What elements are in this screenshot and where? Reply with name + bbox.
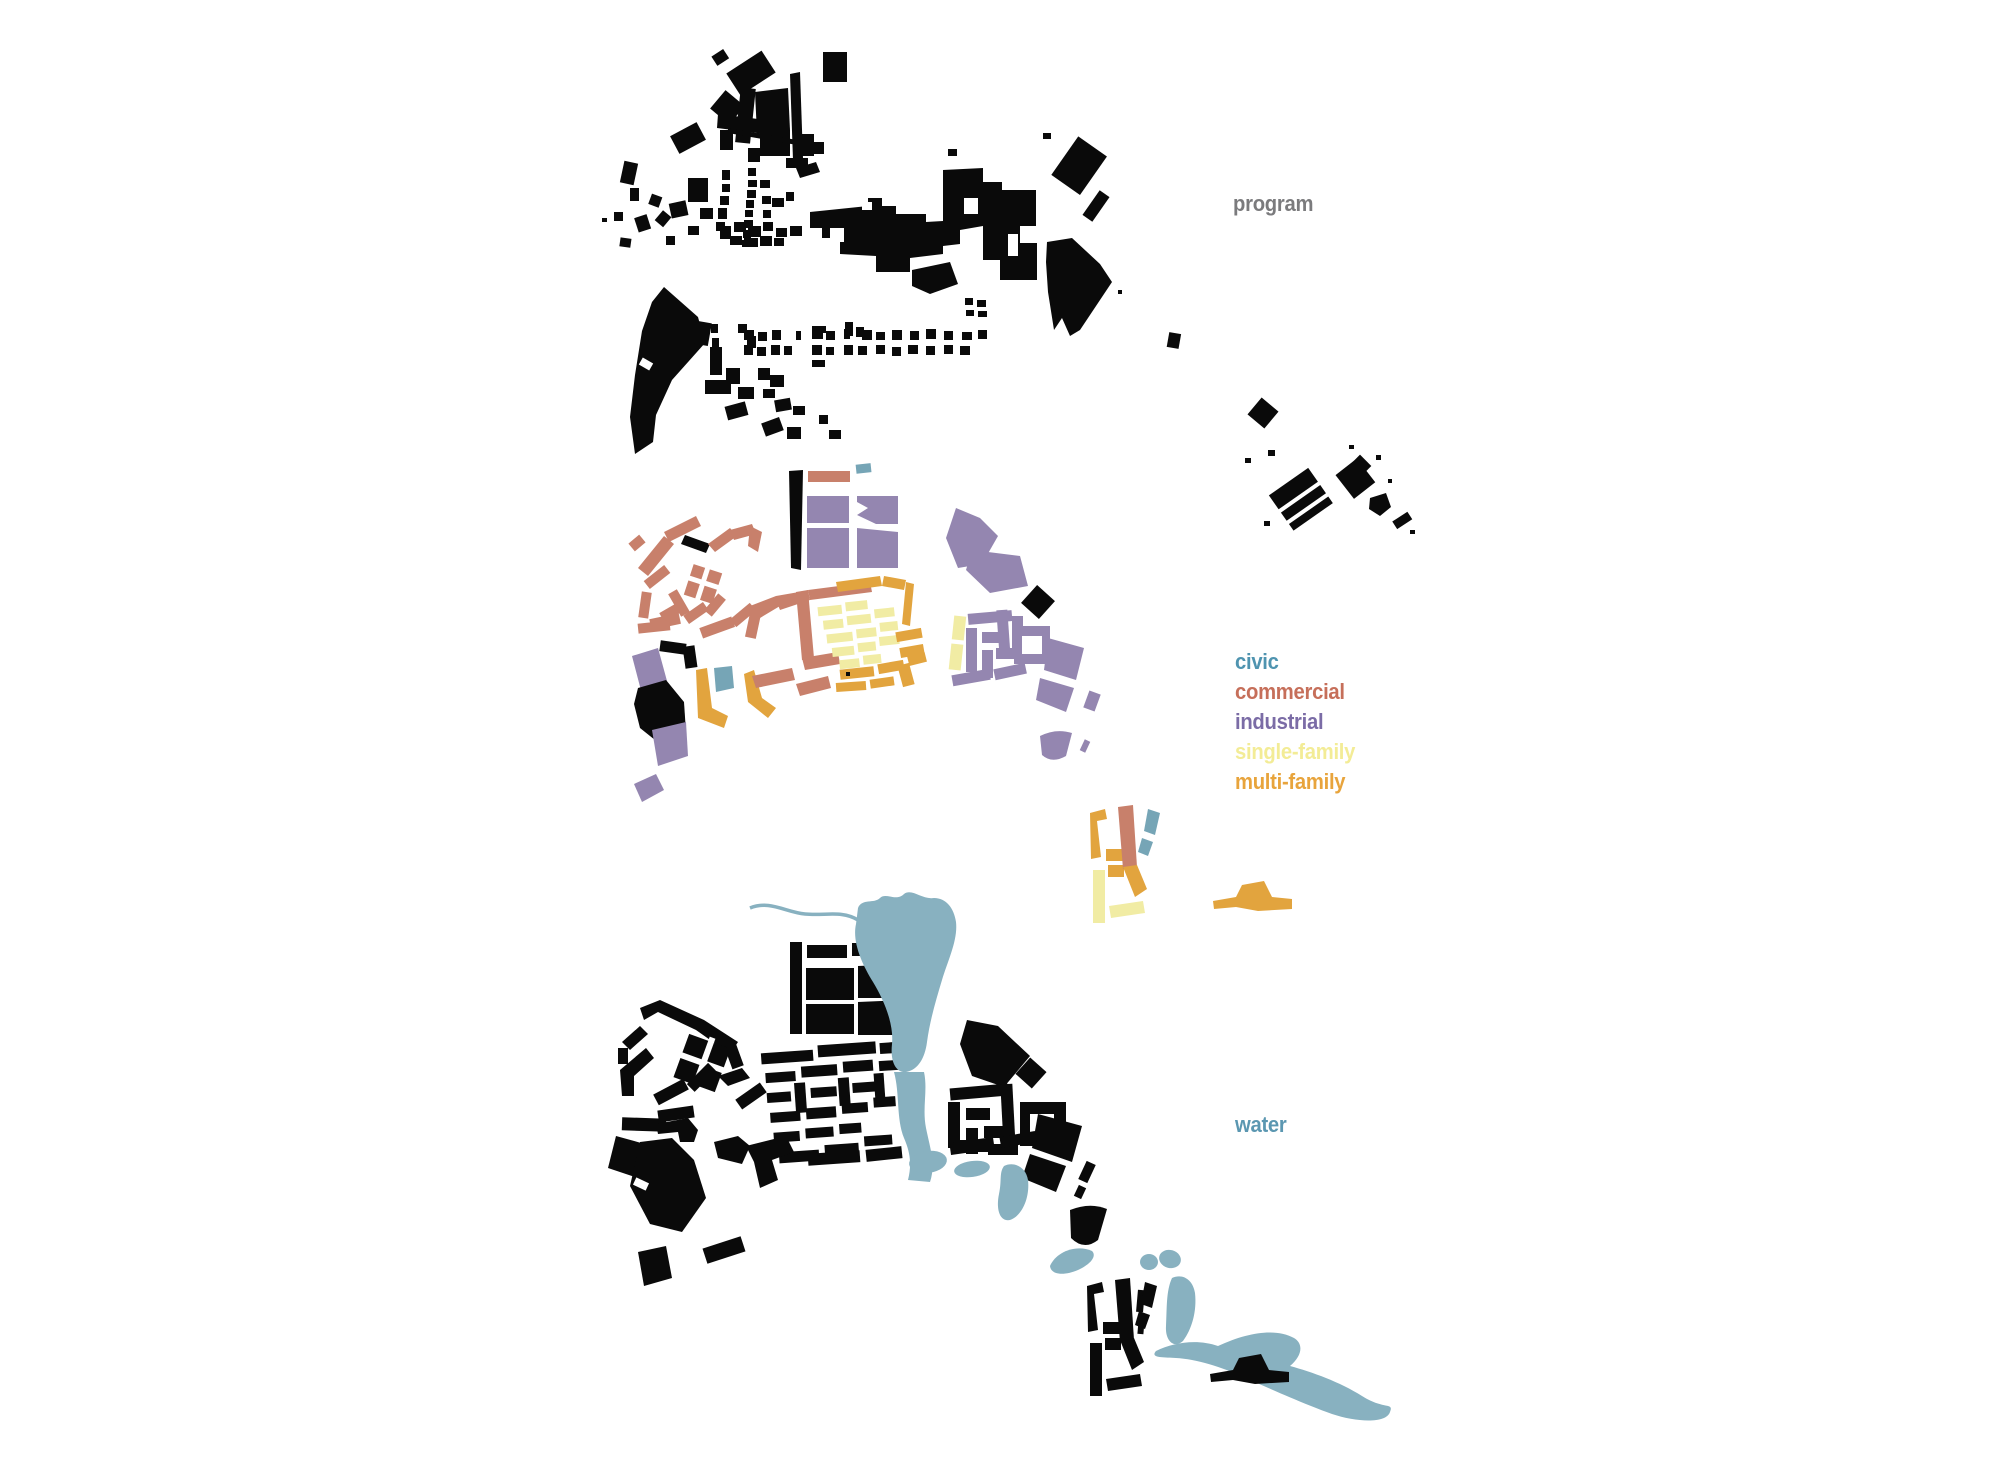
legend-item-civic: civic [1235,647,1355,677]
legend-item-industrial: industrial [1235,707,1355,737]
legend-item-single-family: single-family [1235,737,1355,767]
legend-item-multi-family: multi-family [1235,767,1355,797]
water-map [600,880,1410,1440]
water-map-blocks [608,942,1145,1334]
landuse-map [600,440,1320,940]
landuse-legend: civic commercial industrial single-famil… [1235,647,1366,797]
program-map-label: program [1233,191,1313,217]
landuse-blocks [628,463,1100,802]
water-map-label: water [1235,1112,1287,1138]
legend-item-commercial: commercial [1235,677,1355,707]
urban-analysis-diagram-page: { "labels": { "program": "program", "wat… [0,0,2000,1479]
